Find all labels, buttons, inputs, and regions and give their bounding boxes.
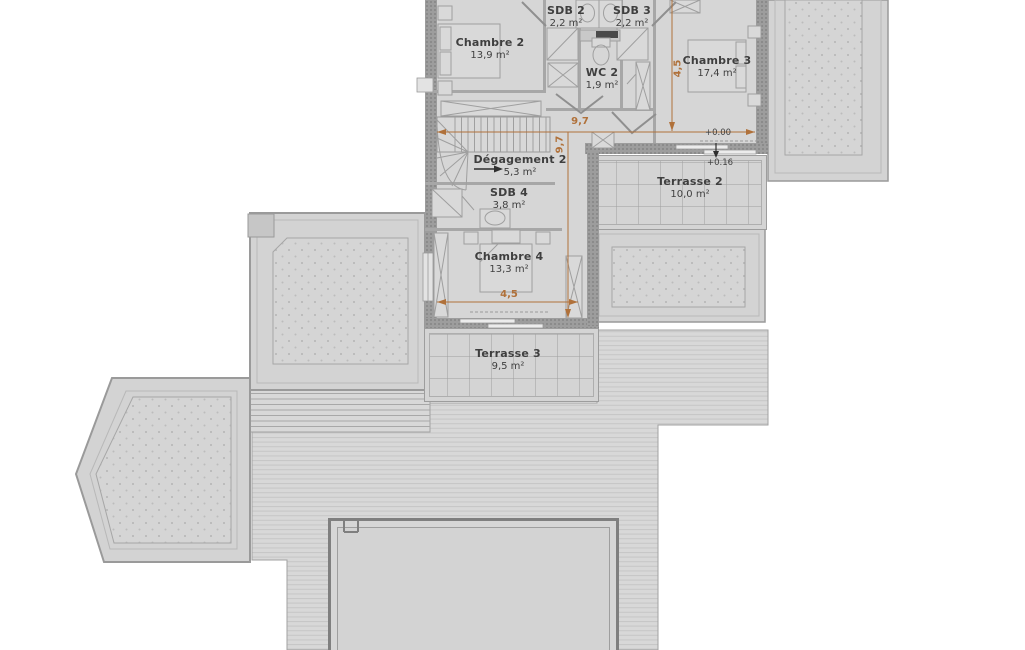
room-label-sdb-4: SDB 4 3,8 m² [477, 187, 541, 212]
dimension-label-chambre-4-width: 4,5 [495, 289, 523, 300]
room-label-terrasse-2: Terrasse 2 10,0 m² [637, 176, 743, 201]
corridor-cabinet [592, 132, 614, 148]
dimension-label-depth: 9,7 [555, 131, 566, 159]
floor-plan: Chambre 2 13,9 m² SDB 2 2,2 m² SDB 3 2,2… [0, 0, 1025, 650]
wardrobe-chambre-2 [441, 101, 541, 116]
annotation-layer [0, 0, 1025, 650]
room-label-sdb-3: SDB 3 2,2 m² [602, 5, 662, 30]
dimension-label-chambre-3-depth: 4,5 [673, 55, 684, 83]
wardrobe-chambre-3 [670, 0, 700, 13]
room-label-chambre-2: Chambre 2 13,9 m² [437, 37, 543, 62]
room-label-sdb-2: SDB 2 2,2 m² [536, 5, 596, 30]
window-west-wall [417, 78, 433, 301]
room-label-wc-2: WC 2 1,9 m² [574, 67, 630, 92]
toilet-wc-2 [580, 30, 620, 65]
room-label-terrasse-3: Terrasse 3 9,5 m² [455, 348, 561, 373]
dimension-label-width: 9,7 [566, 116, 594, 127]
washbasin-sdb-4 [480, 209, 510, 228]
sliding-door-chambre-4 [460, 319, 543, 328]
room-label-chambre-4: Chambre 4 13,3 m² [456, 251, 562, 276]
shower-sdb-4 [432, 189, 474, 217]
pool-ladder-icon [344, 519, 358, 532]
elevation-label-terrace: +0.16 [700, 158, 740, 168]
elevation-label-floor: +0.00 [698, 128, 738, 138]
